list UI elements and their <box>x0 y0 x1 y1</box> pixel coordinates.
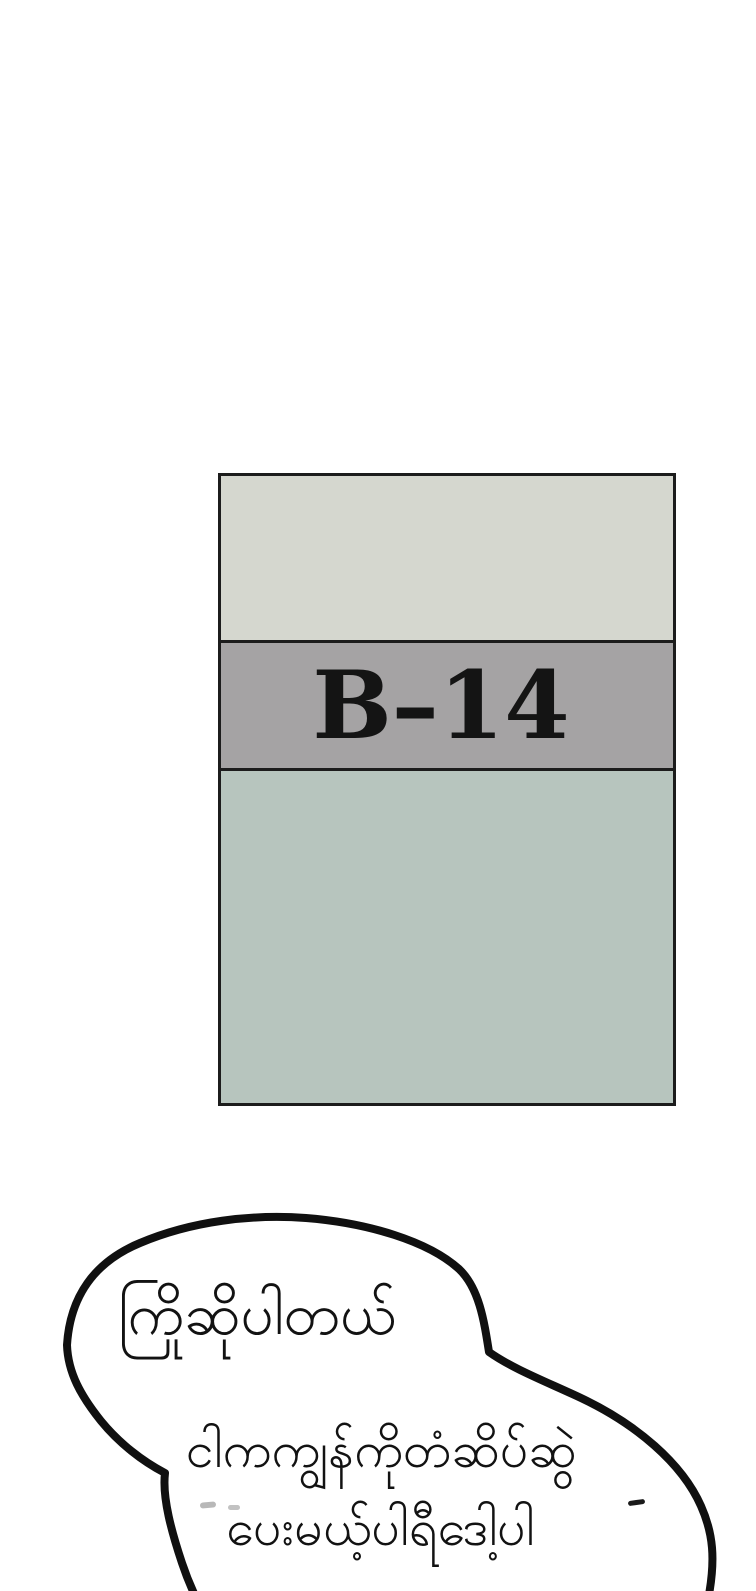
bubble-text-line-3: ပေးမယ့်ပါရီဒေါ့ပါ <box>226 1502 534 1555</box>
bubble-text-line-1: ကြိုဆိုပါတယ် <box>118 1284 396 1345</box>
comic-panel: B–14 ကြိုဆိုပါတယ် ငါကကျွန်ကိုတံဆိပ်ဆွဲ ပ… <box>0 0 756 1591</box>
speech-bubble <box>0 0 756 1591</box>
bubble-text-line-2: ငါကကျွန်ကိုတံဆိပ်ဆွဲ <box>186 1424 577 1477</box>
